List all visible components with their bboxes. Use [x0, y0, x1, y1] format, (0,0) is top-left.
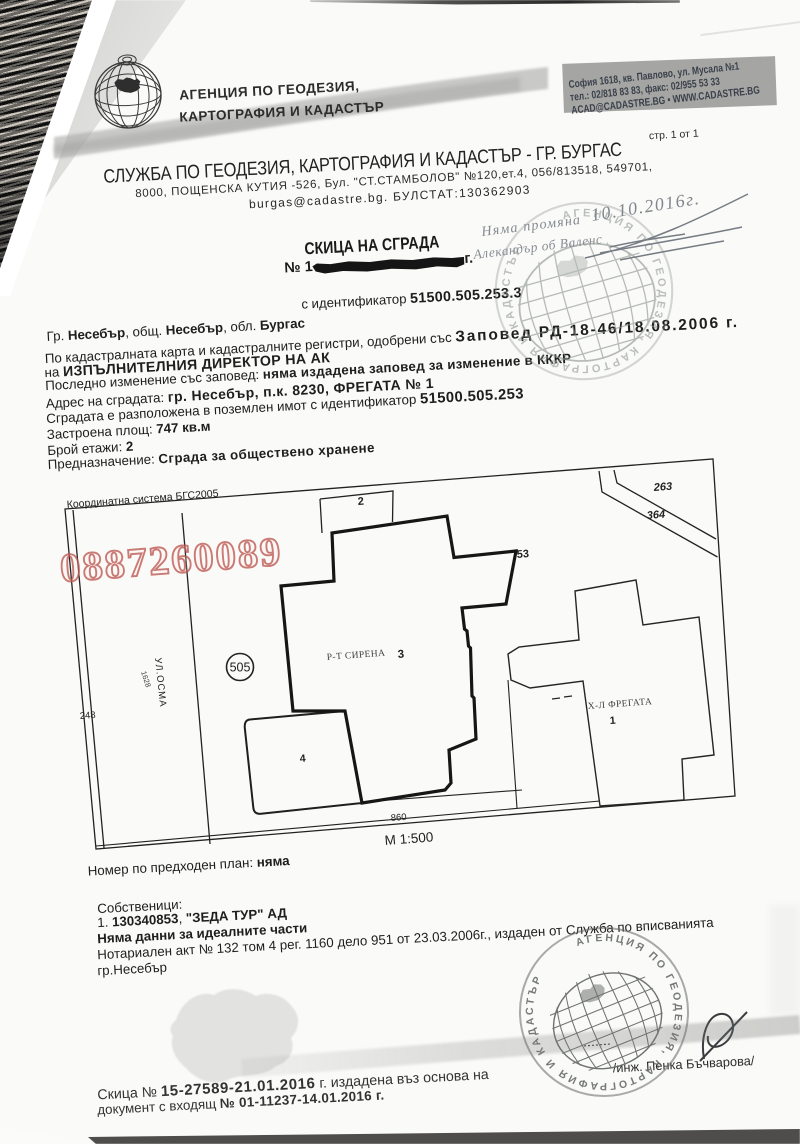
svg-text:263: 263	[652, 481, 672, 494]
svg-text:0887260089: 0887260089	[58, 529, 283, 591]
svg-text:Р-Т СИРЕНА: Р-Т СИРЕНА	[326, 649, 385, 663]
svg-text:3: 3	[397, 649, 404, 661]
svg-text:10.10.2016г.: 10.10.2016г.	[589, 188, 701, 225]
svg-text:4: 4	[299, 753, 306, 765]
svg-text:Координатна система БГС2005: Координатна система БГС2005	[66, 488, 219, 511]
svg-text:53: 53	[516, 548, 529, 561]
svg-text:М 1:500: М 1:500	[384, 829, 434, 848]
svg-text:1: 1	[609, 715, 616, 727]
svg-text:УЛ.ОСМА: УЛ.ОСМА	[152, 657, 168, 708]
svg-text:2: 2	[357, 496, 364, 508]
svg-text:364: 364	[646, 509, 665, 522]
svg-text:505: 505	[230, 661, 251, 675]
svg-text:860: 860	[390, 812, 407, 824]
svg-text:248: 248	[79, 710, 96, 722]
svg-text:1628: 1628	[139, 670, 153, 689]
svg-text:Х-Л ФРЕГАТА: Х-Л ФРЕГАТА	[587, 697, 652, 712]
